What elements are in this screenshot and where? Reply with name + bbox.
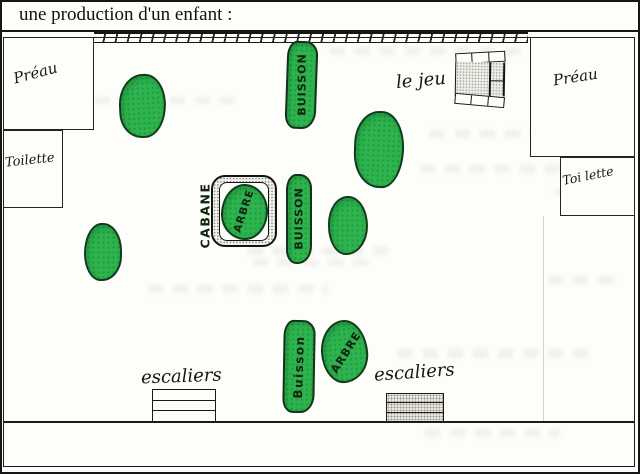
stair-step: [153, 411, 215, 421]
escaliers-left-label: escaliers: [141, 365, 222, 389]
title-underline: [0, 30, 640, 32]
play-structure: [454, 52, 507, 107]
buisson-mid-label: BUISSON: [293, 178, 306, 260]
cabane-label: CABANE: [198, 172, 213, 260]
preau-right-box: [530, 37, 635, 157]
play-structure-middle: [455, 62, 506, 97]
buisson-top-label: BUISSON: [296, 44, 309, 126]
buisson-bottom-label: Buisson: [291, 325, 308, 409]
stair-step: [153, 401, 215, 412]
stairs-right: [386, 393, 444, 422]
stair-step: [153, 390, 215, 401]
faint-crease-line: [543, 216, 544, 421]
stair-step: [387, 394, 443, 403]
stair-step: [387, 403, 443, 412]
stairs-left: [152, 389, 216, 422]
play-structure-rung: [491, 80, 503, 82]
stair-step: [387, 413, 443, 421]
le-jeu-label: le jeu: [395, 68, 447, 93]
ground-line: [3, 421, 635, 423]
scanned-page: une production d'un enfant : Préau Toile…: [0, 0, 640, 474]
tree-blob: [84, 223, 122, 281]
page-title: une production d'un enfant :: [19, 4, 232, 26]
